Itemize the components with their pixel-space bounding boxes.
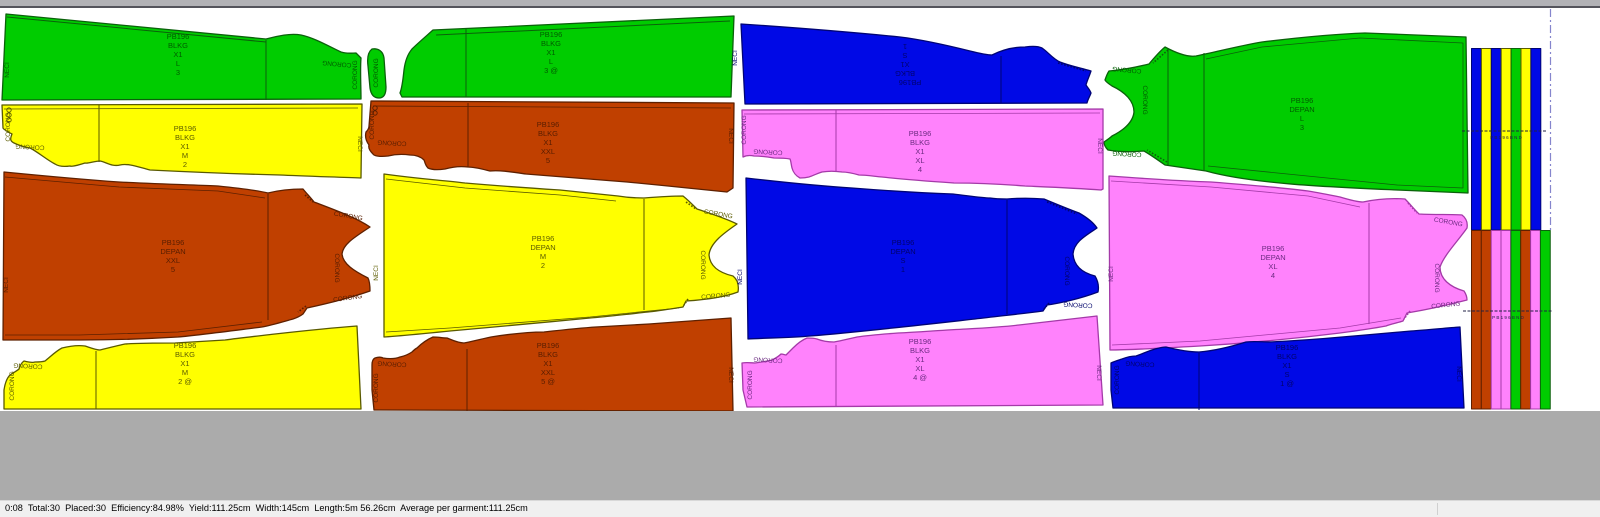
svg-text:CORONG: CORONG: [1141, 85, 1148, 114]
svg-text:CORONG: CORONG: [1114, 365, 1121, 394]
svg-text:NECI: NECI: [1108, 266, 1115, 282]
svg-text:NECI: NECI: [1096, 138, 1103, 154]
svg-text:NECI: NECI: [373, 265, 380, 281]
svg-text:NECI: NECI: [1095, 365, 1102, 381]
svg-text:P B 1 9 6 B N D: P B 1 9 6 B N D: [1490, 135, 1522, 140]
svg-text:CORONG: CORONG: [699, 250, 706, 279]
svg-text:CORONG: CORONG: [373, 373, 380, 402]
svg-text:NECI: NECI: [356, 136, 363, 152]
svg-text:CORONG: CORONG: [352, 60, 359, 89]
svg-text:P B 1 9 6 B N D: P B 1 9 6 B N D: [1492, 315, 1524, 320]
svg-text:CORONG: CORONG: [373, 58, 380, 87]
svg-text:NECI: NECI: [1455, 366, 1462, 382]
svg-text:0:08 Total:30 Placed:30 Eff: 0:08 Total:30 Placed:30 Efficiency:84.98…: [5, 503, 528, 513]
svg-text:NECI: NECI: [737, 269, 744, 285]
svg-text:CORONG: CORONG: [1433, 263, 1440, 292]
svg-text:NECI: NECI: [727, 128, 734, 144]
svg-text:CORONG: CORONG: [333, 253, 340, 282]
svg-text:CORONG: CORONG: [741, 115, 748, 144]
svg-text:NECI: NECI: [732, 50, 739, 66]
svg-text:CORONG: CORONG: [9, 371, 16, 400]
svg-text:NECI: NECI: [727, 367, 734, 383]
svg-text:CORONG: CORONG: [747, 370, 754, 399]
svg-text:CORONG: CORONG: [1063, 256, 1070, 285]
svg-text:NECI: NECI: [4, 62, 11, 78]
svg-text:NECI: NECI: [3, 277, 10, 293]
